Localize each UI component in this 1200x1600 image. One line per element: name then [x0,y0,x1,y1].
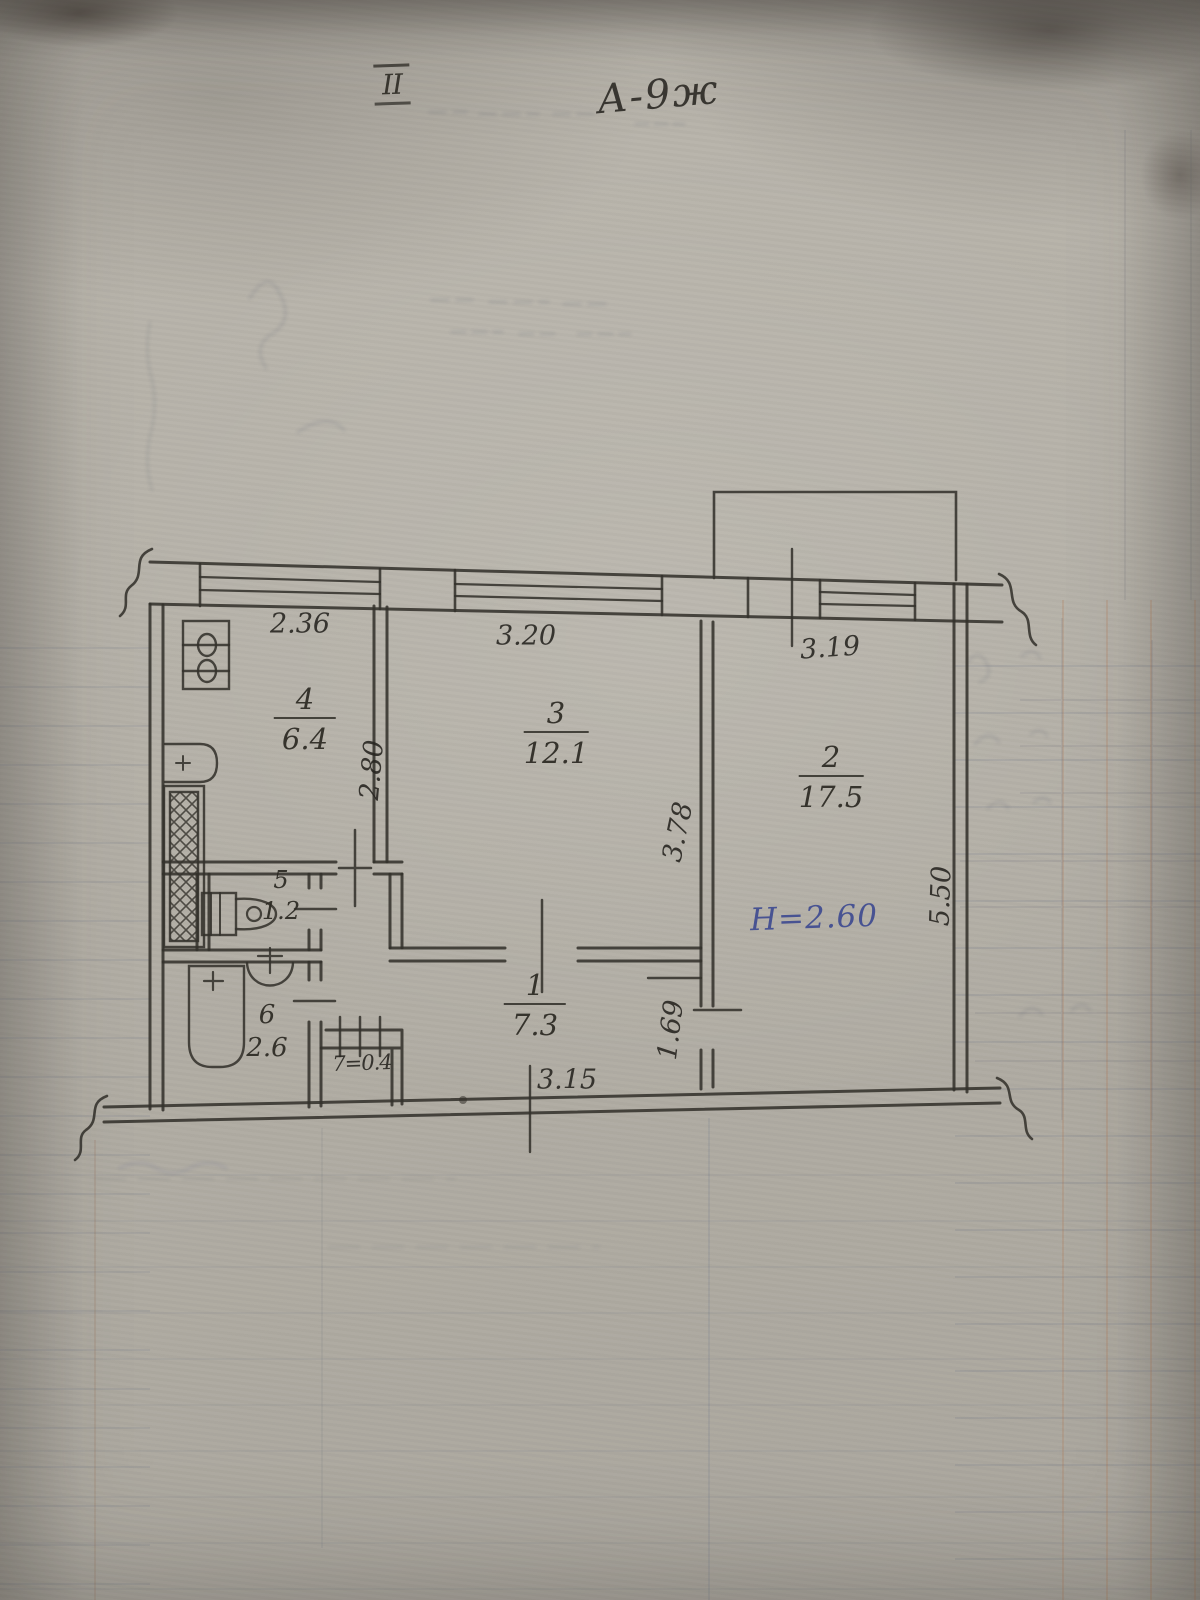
room-label-5: 5 1.2 [262,866,300,925]
room-area: 12.1 [524,733,589,770]
room-label-4: 4 6.4 [274,682,336,756]
bath-north-wall [163,950,321,962]
dim-kitchen-depth: 2.80 [354,739,390,802]
room-label-2: 2 17.5 [799,740,864,814]
floorplan-drawing [0,0,1200,1600]
room-number: 2 [799,740,864,777]
dim-top-left: 2.36 [270,609,330,640]
room-label-3: 3 12.1 [524,696,589,770]
room-number: 6 [246,1000,287,1030]
room-area: 6.4 [274,719,336,756]
bathtub-icon [189,966,244,1067]
room-area: 17.5 [799,777,864,814]
room-number: 4 [274,682,336,719]
dim-hall-width: 3.15 [537,1065,597,1096]
room2-west-wall [701,621,713,1089]
dim-top-right: 3.19 [799,630,861,665]
left-wall [150,604,163,1110]
break-top-right [999,574,1036,645]
dim-room2-depth: 5.50 [924,865,957,926]
stove-icon [183,621,229,689]
room-label-6: 6 2.6 [246,1000,287,1063]
break-bottom-right [997,1078,1032,1139]
kitchen-east-wall [374,606,387,862]
break-bottom-left [75,1096,107,1160]
room-area: 1.2 [262,894,300,925]
dim-top-middle: 3.20 [496,621,556,652]
room-area: 2.6 [246,1030,287,1063]
room-number: 3 [524,696,589,733]
balcony-outline [714,492,956,580]
right-wall [954,584,967,1092]
hall-pocket-east-wall [390,874,402,948]
vent-shaft [164,786,204,947]
kitchen-door-mark [339,830,371,906]
sink-icon [165,744,217,782]
closet-label: 7=0.4 [332,1050,392,1076]
top-wall-outer [150,562,1002,585]
wc-east-wall [309,874,321,950]
hall-north-wall [390,948,701,961]
window-room2 [820,592,915,606]
ink-blot [459,1096,467,1104]
floor-number-text: II [381,68,402,102]
room-number: 1 [504,968,566,1005]
window-room3 [455,584,662,601]
washbasin-icon [247,948,293,986]
window-kitchen [200,577,380,594]
bath-east-wall [309,962,321,1107]
ceiling-height-note: Н=2.60 [749,898,878,938]
room-number: 5 [262,866,300,894]
room-area: 7.3 [504,1005,566,1042]
faint-table-grid [960,618,1200,1120]
break-top-left [120,549,152,616]
scanned-floorplan-page: II А-9ж 1 7.3 2 17.5 3 12.1 4 6.4 5 1.2 … [0,0,1200,1600]
floor-number-mark: II [373,63,411,105]
vent-shaft-hatch [170,792,198,941]
room-label-1: 1 7.3 [504,968,566,1042]
